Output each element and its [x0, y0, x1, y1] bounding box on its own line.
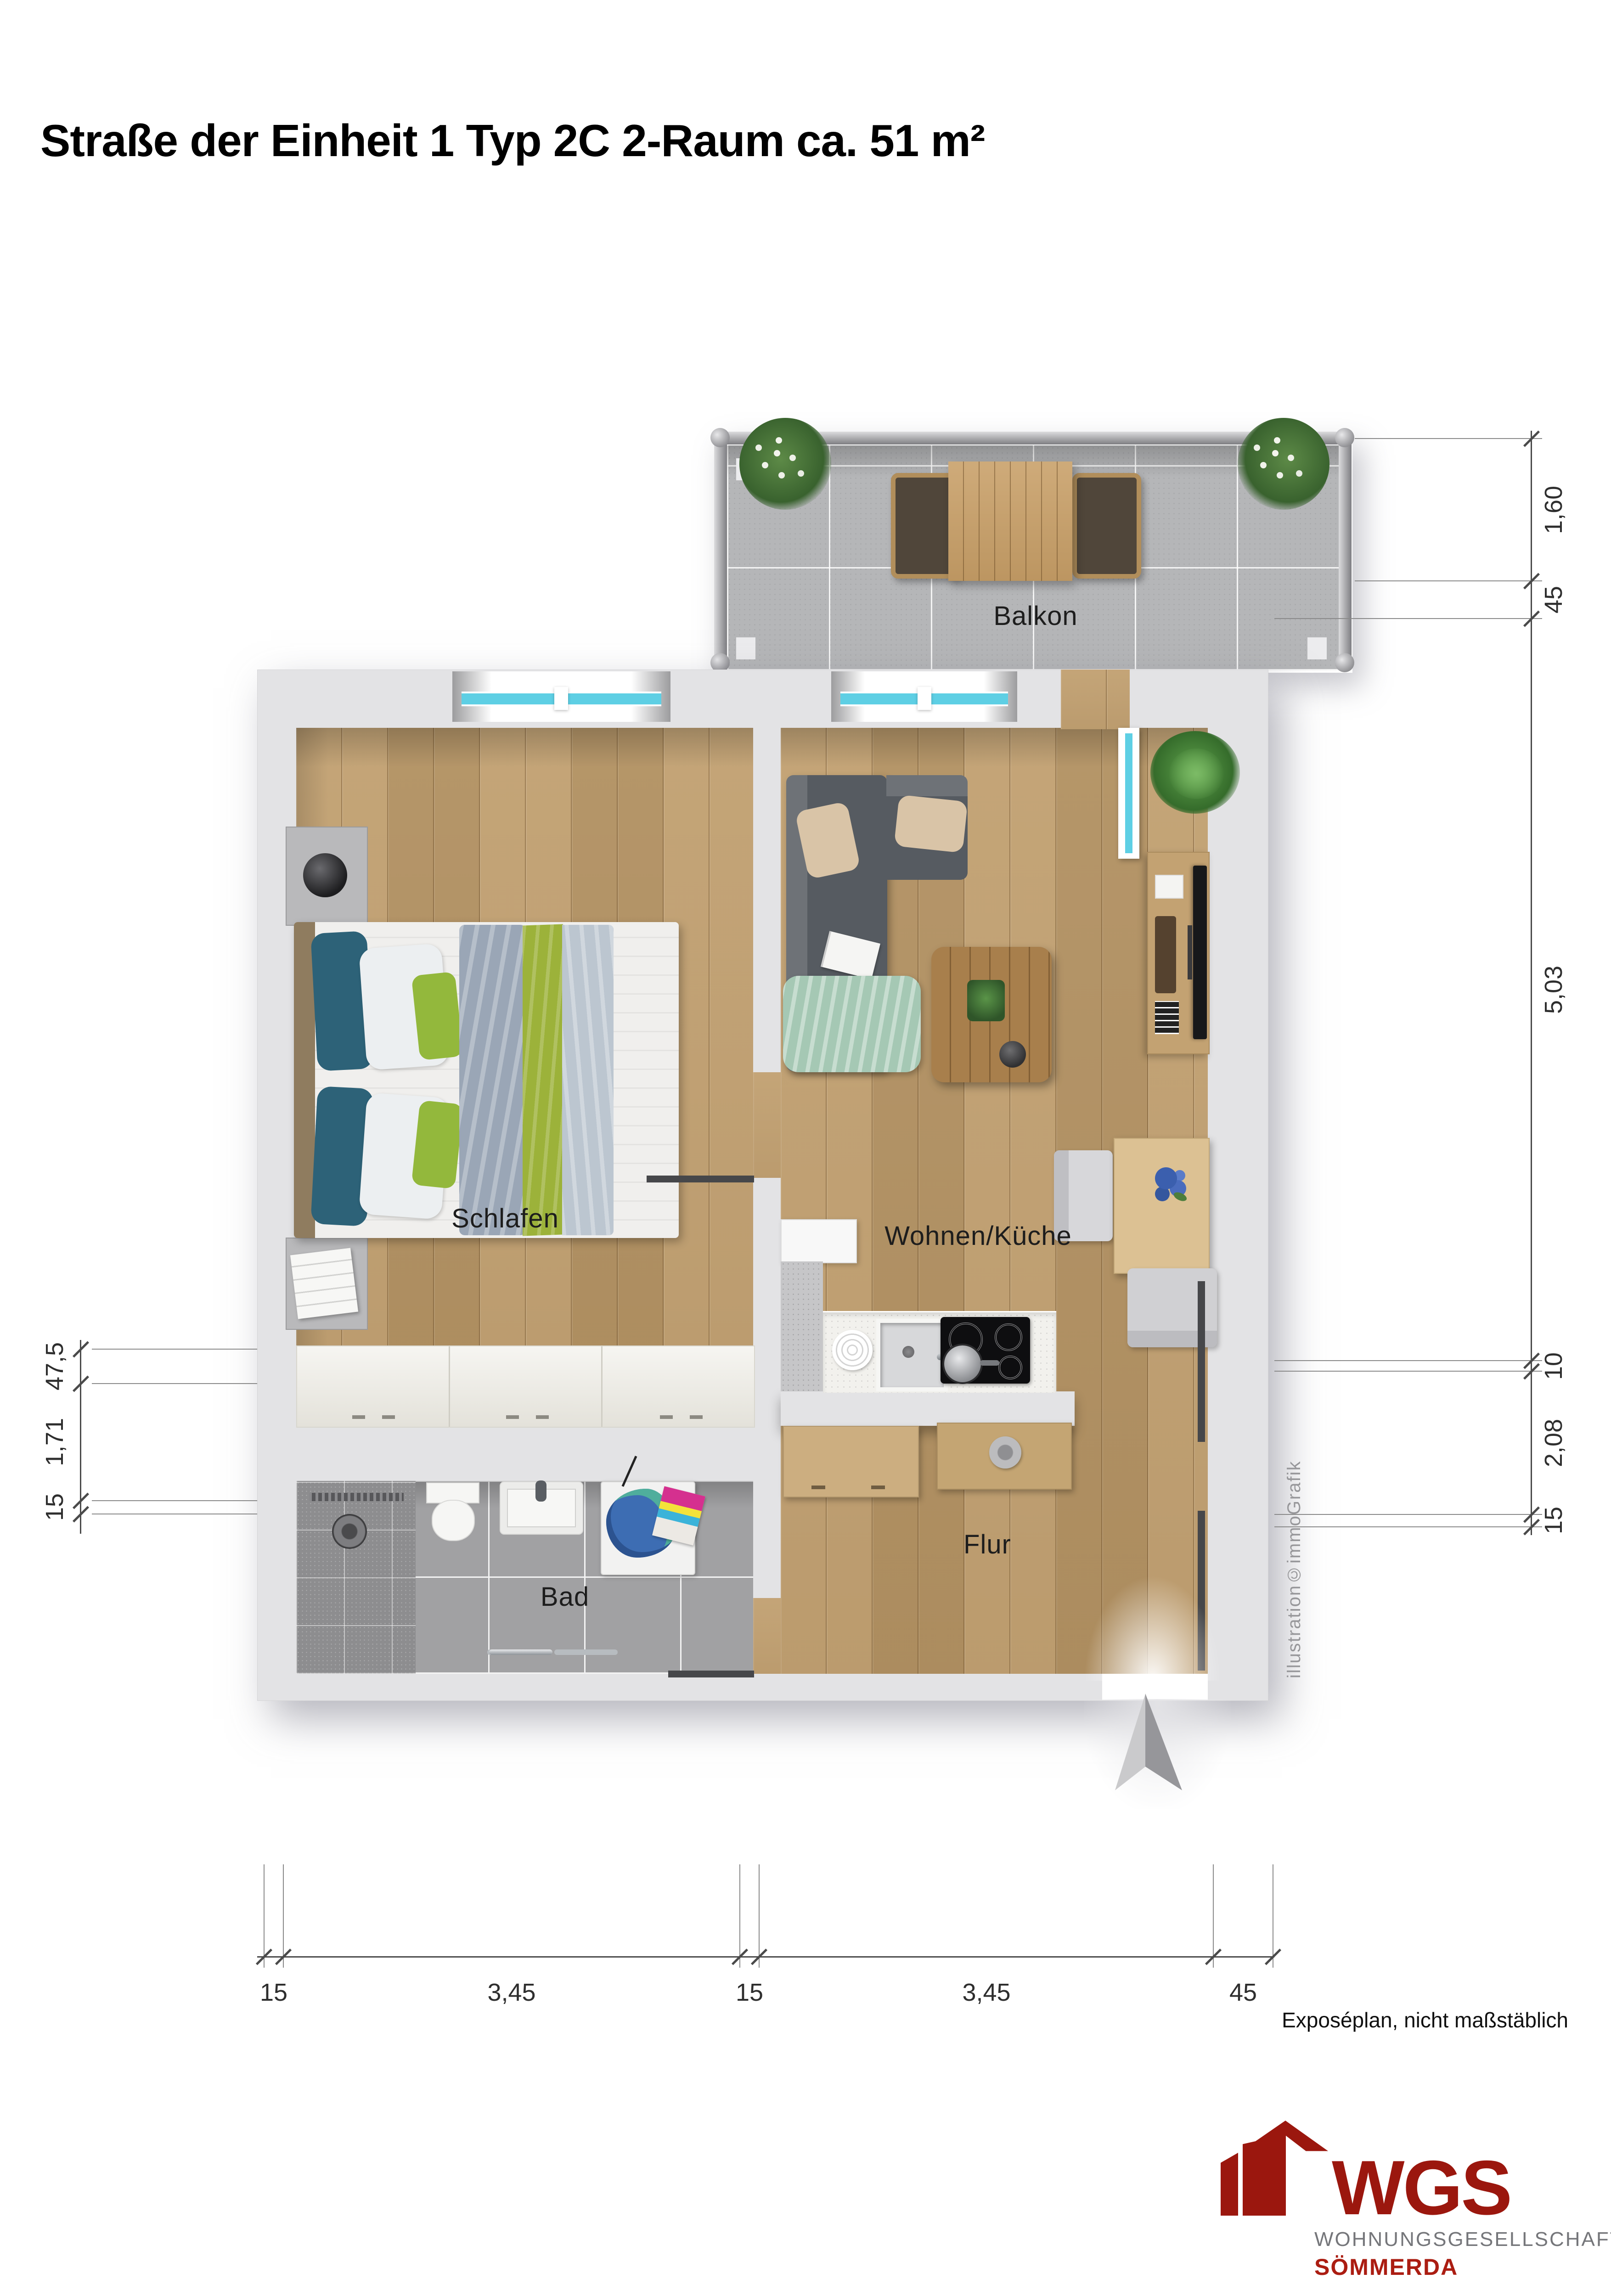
dim-label: 1,60: [1539, 459, 1568, 560]
balcony-door-opening: [1061, 670, 1130, 729]
bedroom-door-opening: [753, 1072, 781, 1178]
dim-ext: [1274, 618, 1542, 619]
railing-post: [1307, 637, 1327, 659]
balcony: Balkon: [714, 432, 1352, 673]
duvet-blue: [562, 925, 614, 1235]
bedroom-window: [452, 671, 670, 722]
dim-ext: [1273, 1864, 1273, 1968]
balcony-railing-right: [1339, 432, 1352, 670]
tv-icon: [1193, 866, 1207, 1039]
dim-ext: [92, 1500, 257, 1501]
duvet-gray: [459, 925, 526, 1235]
dim-ext: [1274, 1514, 1542, 1515]
dining-table: [1114, 1138, 1210, 1274]
living-label: Wohnen/Küche: [840, 1221, 1116, 1251]
dim-label: 5,03: [1539, 939, 1568, 1040]
dim-label: 45: [1193, 1978, 1294, 2007]
bedroom-label: Schlafen: [390, 1203, 620, 1234]
balcony-door-leaf: [1118, 728, 1139, 859]
burner: [995, 1323, 1022, 1351]
bedroom-dresser: [296, 1345, 755, 1428]
dim-ext: [1213, 1864, 1214, 1968]
tray: [1155, 875, 1183, 899]
living-door-leaf: [1198, 1281, 1205, 1442]
window-mullion: [554, 687, 568, 710]
balcony-railing-left: [714, 432, 727, 670]
pillow-green: [411, 1100, 464, 1189]
balcony-plant-icon: [1238, 418, 1329, 510]
dim-ext: [1355, 580, 1542, 581]
dresser-divider: [449, 1346, 450, 1427]
dim-label: 15: [699, 1978, 800, 2007]
dim-ext: [92, 1514, 257, 1514]
bath-label: Bad: [496, 1581, 634, 1612]
pot-handle: [980, 1360, 999, 1366]
towel-bar-icon: [489, 1649, 552, 1655]
dim-ext: [1274, 1360, 1542, 1361]
balcony-label: Balkon: [941, 601, 1130, 631]
washing-machine: [601, 1481, 695, 1575]
hall-sideboard: [783, 1426, 919, 1497]
sideboard-handle: [871, 1486, 885, 1489]
shower-head-icon: [332, 1514, 367, 1549]
dim-ext: [92, 1349, 257, 1350]
entrance-light: [1084, 1575, 1222, 1681]
kitchen-hall-wall: [781, 1391, 1075, 1426]
balcony-table: [948, 461, 1072, 581]
dim-label: 3,45: [936, 1978, 1037, 2007]
logo-house-icon: [1221, 2153, 1238, 2216]
living-plant-icon: [1169, 748, 1224, 799]
dim-ext: [92, 1383, 257, 1384]
dim-chain-bottom: [257, 1956, 1274, 1958]
window-mullion: [918, 687, 931, 710]
dim-ext: [283, 1864, 284, 1968]
dim-label: 15: [1539, 1470, 1568, 1571]
dim-label: 15: [223, 1978, 324, 2007]
flower-leaves: [1172, 1191, 1188, 1203]
dresser-handle: [382, 1415, 395, 1419]
door-glass: [1125, 733, 1132, 853]
railing-knob: [1335, 428, 1354, 447]
bath-sink: [500, 1481, 583, 1535]
living-window: [831, 671, 1017, 722]
dim-label: 45: [1539, 549, 1568, 650]
dresser-handle: [352, 1415, 365, 1419]
balcony-chair: [1072, 473, 1141, 579]
logo-line2: SÖMMERDA: [1314, 2254, 1458, 2280]
dim-ext: [1274, 1371, 1542, 1372]
dresser-divider: [601, 1346, 603, 1427]
burner: [998, 1356, 1022, 1379]
logo-line1: WOHNUNGSGESELLSCHAFT: [1314, 2228, 1611, 2251]
sofa-throw: [783, 976, 921, 1072]
bedroom-door-leaf: [647, 1176, 754, 1182]
sink-drain: [902, 1346, 914, 1358]
plates-icon: [832, 1330, 873, 1370]
sideboard-handle: [811, 1486, 825, 1489]
kitchen-corner-counter: [781, 1261, 823, 1391]
bathroom-door-leaf: [668, 1671, 754, 1677]
dim-ext: [1274, 1526, 1542, 1527]
railing-knob: [1335, 653, 1354, 672]
magazine: [290, 1248, 358, 1319]
logo-acronym: WGS: [1332, 2144, 1510, 2232]
toilet-icon: [432, 1500, 475, 1541]
faucet-icon: [535, 1480, 546, 1502]
dresser-handle: [506, 1415, 519, 1419]
shower-drain: [309, 1493, 404, 1501]
dresser-handle: [536, 1415, 549, 1419]
railing-knob: [710, 428, 730, 447]
shower: [296, 1481, 416, 1674]
pot-icon: [944, 1345, 981, 1382]
illustrator-watermark: illustration©immoGrafik: [1284, 1311, 1310, 1678]
hall-label: Flur: [918, 1529, 1056, 1560]
dim-label: 3,45: [461, 1978, 562, 2007]
dim-ext: [739, 1864, 740, 1968]
coaster-icon: [999, 1041, 1026, 1068]
plant-flowers: [774, 450, 780, 456]
hall-cabinet: [937, 1423, 1072, 1490]
speaker: [1155, 916, 1176, 993]
dim-ext: [759, 1864, 760, 1968]
scale-disclaimer: Exposéplan, nicht maßstäblich: [1194, 2008, 1568, 2032]
pillow-green: [411, 972, 464, 1061]
flowers-icon: [1155, 1167, 1177, 1189]
bathroom-door-opening: [753, 1598, 781, 1674]
page-title: Straße der Einheit 1 Typ 2C 2-Raum ca. 5…: [40, 115, 1556, 167]
table-plant-icon: [967, 980, 1005, 1021]
coffee-table: [931, 947, 1052, 1082]
dresser-handle: [660, 1415, 673, 1419]
plant-flowers: [1272, 450, 1279, 456]
book-stack: [1155, 1001, 1179, 1034]
shadow: [296, 728, 753, 767]
dresser-handle: [690, 1415, 703, 1419]
wgs-logo: WGS WOHNUNGSGESELLSCHAFT SÖMMERDA: [1217, 2112, 1611, 2296]
duvet-green: [523, 924, 563, 1236]
dim-ext: [1355, 438, 1542, 439]
tv-stand: [1188, 925, 1192, 979]
balcony-plant-icon: [739, 418, 831, 510]
dim-chain-left: [80, 1340, 81, 1534]
dim-label: 15: [40, 1457, 69, 1558]
floorplan-page: Straße der Einheit 1 Typ 2C 2-Raum ca. 5…: [0, 0, 1611, 2296]
sofa-pillow: [894, 794, 968, 853]
lamp-icon: [303, 853, 347, 897]
railing-post: [736, 637, 755, 659]
dim-ext: [264, 1864, 265, 1968]
shadow: [781, 728, 1208, 767]
bed: [294, 922, 679, 1238]
stove-icon: [941, 1317, 1030, 1384]
cup-icon: [989, 1436, 1021, 1469]
entrance-opening: [1102, 1674, 1208, 1700]
